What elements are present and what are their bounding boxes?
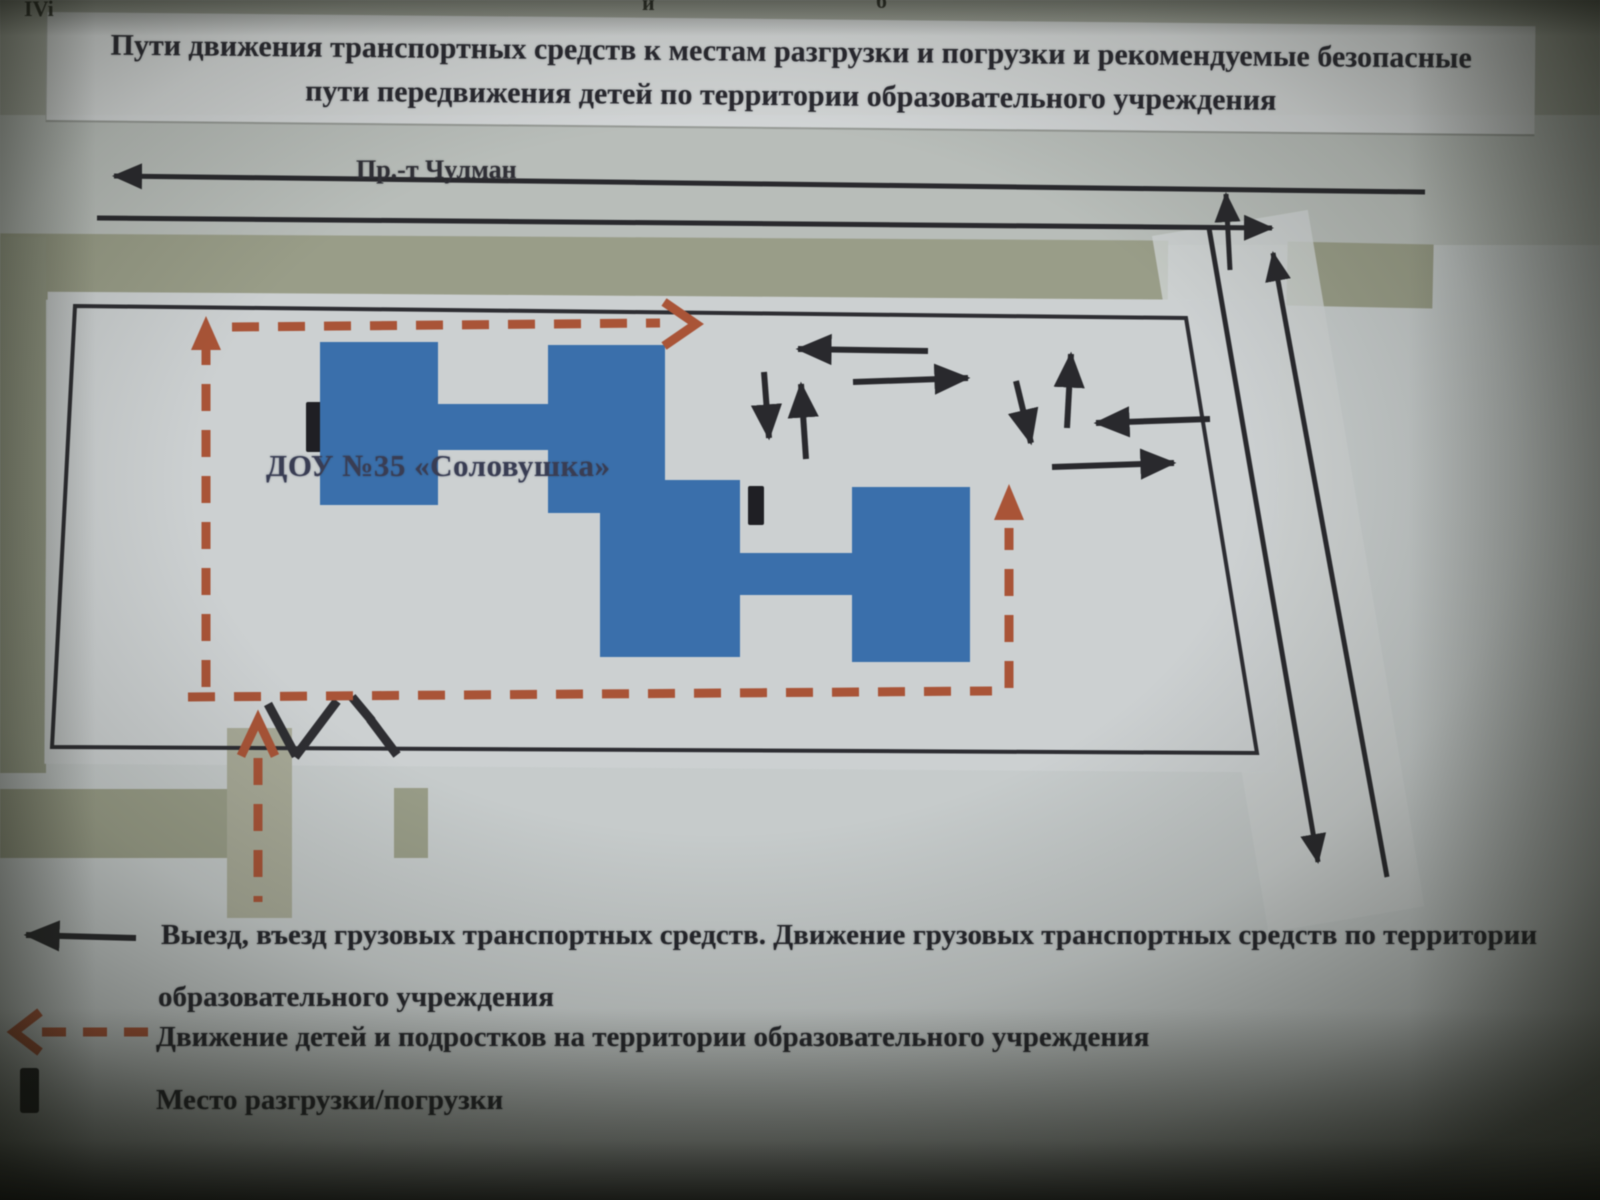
children-arrowhead-up-right [994,484,1024,520]
truck-arrow-up-1 [801,384,806,459]
edge-fragment-right: б [876,0,887,14]
children-arrowhead-up-left [191,316,221,350]
junction-exit-up-arrow [1226,194,1230,270]
legend-truck-arrow [26,935,136,938]
street-label: Пр.-т Чулман [356,155,517,185]
side-road-up-arrow [1273,253,1387,877]
avenue-right-arrow [97,218,1272,228]
truck-arrow-right-1 [853,378,968,382]
photo-content: Пути движения транспортных средств к мес… [0,0,1600,1200]
edge-fragment-left: IVi [24,0,54,22]
building-block-lower-left [600,480,740,657]
legend-children-arrowhead [14,1012,40,1052]
truck-arrow-left-2 [1096,419,1210,423]
edge-fragment-middle: й [642,0,655,16]
truck-arrow-down-1 [764,372,769,438]
children-route-top [232,323,660,327]
truck-arrow-down-2 [1016,381,1031,443]
truck-arrow-up-2 [1067,354,1071,428]
building-block-lower-right [852,487,970,662]
children-chevron-entrance [241,720,275,756]
side-road [1209,194,1387,877]
legend-item-trucks-line1: Выезд, въезд грузовых транспортных средс… [161,919,1537,952]
photo-of-route-scheme: { "photo": { "edge_fragments": { "left":… [0,0,1600,1200]
building-label: ДОУ №35 «Соловушка» [266,448,610,484]
legend-item-trucks-line2: образовательного учреждения [158,981,554,1014]
gate-stroke-3 [352,697,372,721]
children-route-bottom [188,691,992,697]
truck-arrow-left-1 [798,349,928,351]
avenue-left-arrow [114,176,1425,192]
truck-route-arrows [764,349,1210,467]
legend-loading-marker [20,1068,39,1113]
loading-marker-2 [748,486,764,525]
legend-item-children: Движение детей и подростков на территори… [156,1021,1149,1054]
building-connector-upper [438,404,550,450]
building-connector-lower [740,553,852,595]
legend-item-loading: Место разгрузки/погрузки [156,1084,503,1117]
building-complex [320,342,970,662]
children-chevron-right [664,302,696,346]
scheme-drawing [0,0,1600,1200]
side-road-down-arrow [1209,228,1318,862]
truck-arrow-right-2 [1052,463,1174,467]
